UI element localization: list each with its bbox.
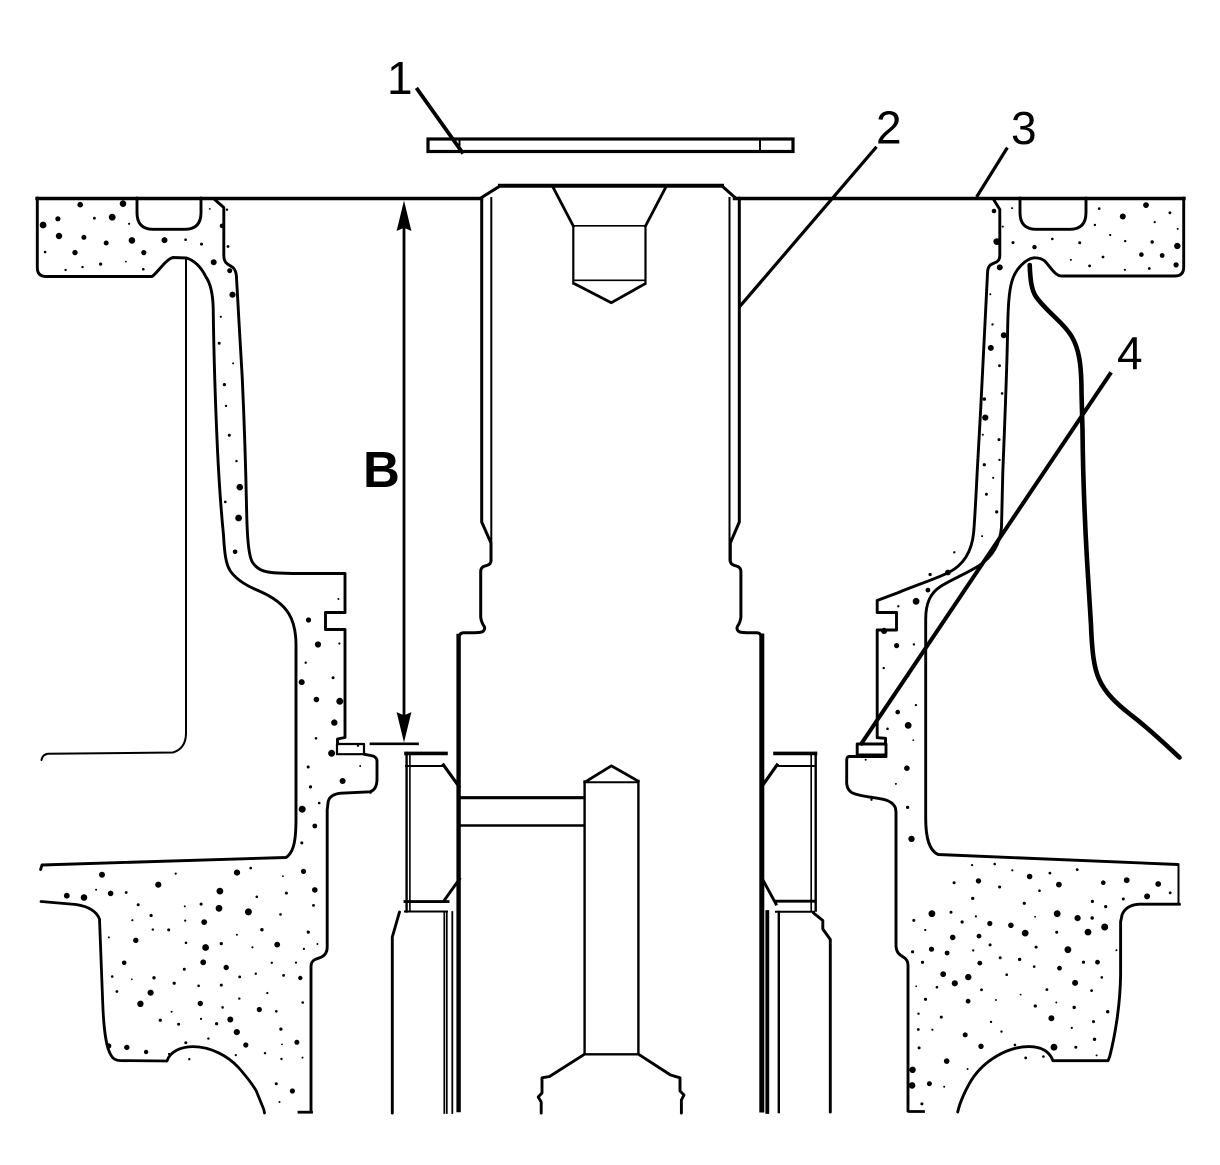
svg-text:B: B — [363, 441, 400, 498]
svg-text:3: 3 — [1011, 102, 1037, 154]
svg-text:2: 2 — [876, 102, 902, 154]
svg-text:1: 1 — [387, 52, 413, 104]
svg-text:4: 4 — [1117, 327, 1143, 379]
